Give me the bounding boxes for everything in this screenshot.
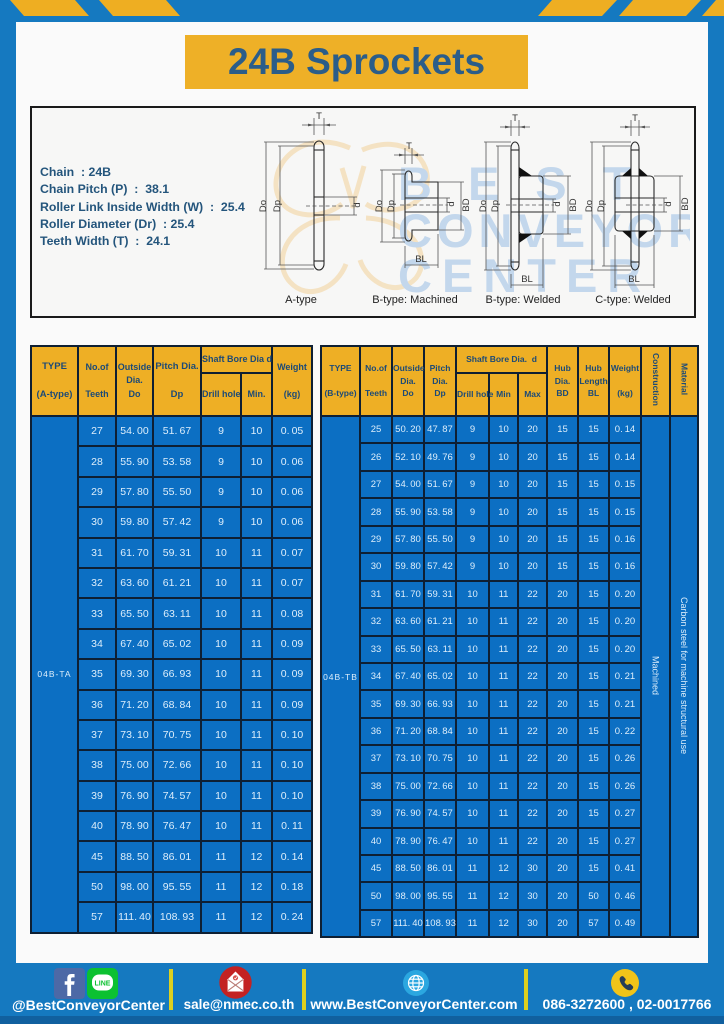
svg-text:T: T <box>406 141 412 152</box>
svg-text:BD: BD <box>680 197 691 210</box>
svg-text:BD: BD <box>461 198 472 211</box>
svg-text:BL: BL <box>415 254 427 265</box>
svg-text:Dp: Dp <box>272 200 283 212</box>
svg-text:A-type: A-type <box>285 294 317 306</box>
svg-text:T: T <box>632 113 638 124</box>
svg-text:BL: BL <box>628 274 640 285</box>
svg-text:Do: Do <box>374 200 385 212</box>
svg-text:BD: BD <box>568 198 579 211</box>
svg-text:d: d <box>552 201 563 206</box>
svg-text:B-type: Machined: B-type: Machined <box>372 294 458 306</box>
svg-text:B-type: Welded: B-type: Welded <box>485 294 560 306</box>
svg-text:T: T <box>316 111 322 122</box>
svg-text:T: T <box>512 113 518 124</box>
svg-text:d: d <box>663 201 674 206</box>
svg-text:d: d <box>352 202 363 207</box>
svg-text:Dp: Dp <box>490 200 501 212</box>
svg-text:Do: Do <box>258 200 269 212</box>
svg-text:Do: Do <box>584 200 595 212</box>
svg-text:Do: Do <box>478 200 489 212</box>
svg-text:Dp: Dp <box>596 200 607 212</box>
svg-text:d: d <box>446 201 457 206</box>
svg-text:Dp: Dp <box>386 200 397 212</box>
svg-text:C-type: Welded: C-type: Welded <box>595 294 671 306</box>
svg-text:LINE: LINE <box>95 980 111 987</box>
svg-text:BL: BL <box>521 274 533 285</box>
